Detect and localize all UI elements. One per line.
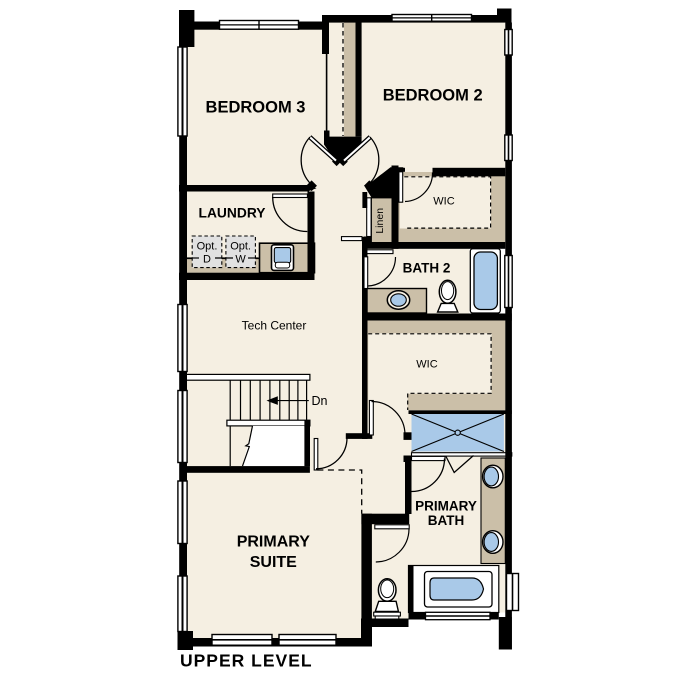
svg-text:WIC: WIC [416, 358, 437, 370]
svg-text:BEDROOM 2: BEDROOM 2 [383, 86, 483, 104]
svg-text:Linen: Linen [374, 208, 386, 234]
svg-text:PRIMARY: PRIMARY [415, 498, 477, 513]
svg-text:LAUNDRY: LAUNDRY [199, 205, 266, 220]
svg-text:SUITE: SUITE [250, 554, 297, 571]
svg-text:Opt.: Opt. [230, 241, 251, 253]
svg-text:W: W [235, 254, 246, 266]
svg-text:BATH 2: BATH 2 [403, 260, 451, 275]
svg-text:D: D [203, 254, 211, 266]
svg-text:PRIMARY: PRIMARY [237, 533, 311, 550]
svg-text:Dn: Dn [312, 394, 328, 408]
svg-text:UPPER LEVEL: UPPER LEVEL [180, 651, 313, 671]
svg-text:Tech Center: Tech Center [242, 319, 307, 333]
svg-text:BEDROOM 3: BEDROOM 3 [206, 98, 306, 116]
svg-text:Opt.: Opt. [197, 241, 218, 253]
svg-text:WIC: WIC [433, 195, 454, 207]
svg-text:BATH: BATH [428, 513, 465, 528]
